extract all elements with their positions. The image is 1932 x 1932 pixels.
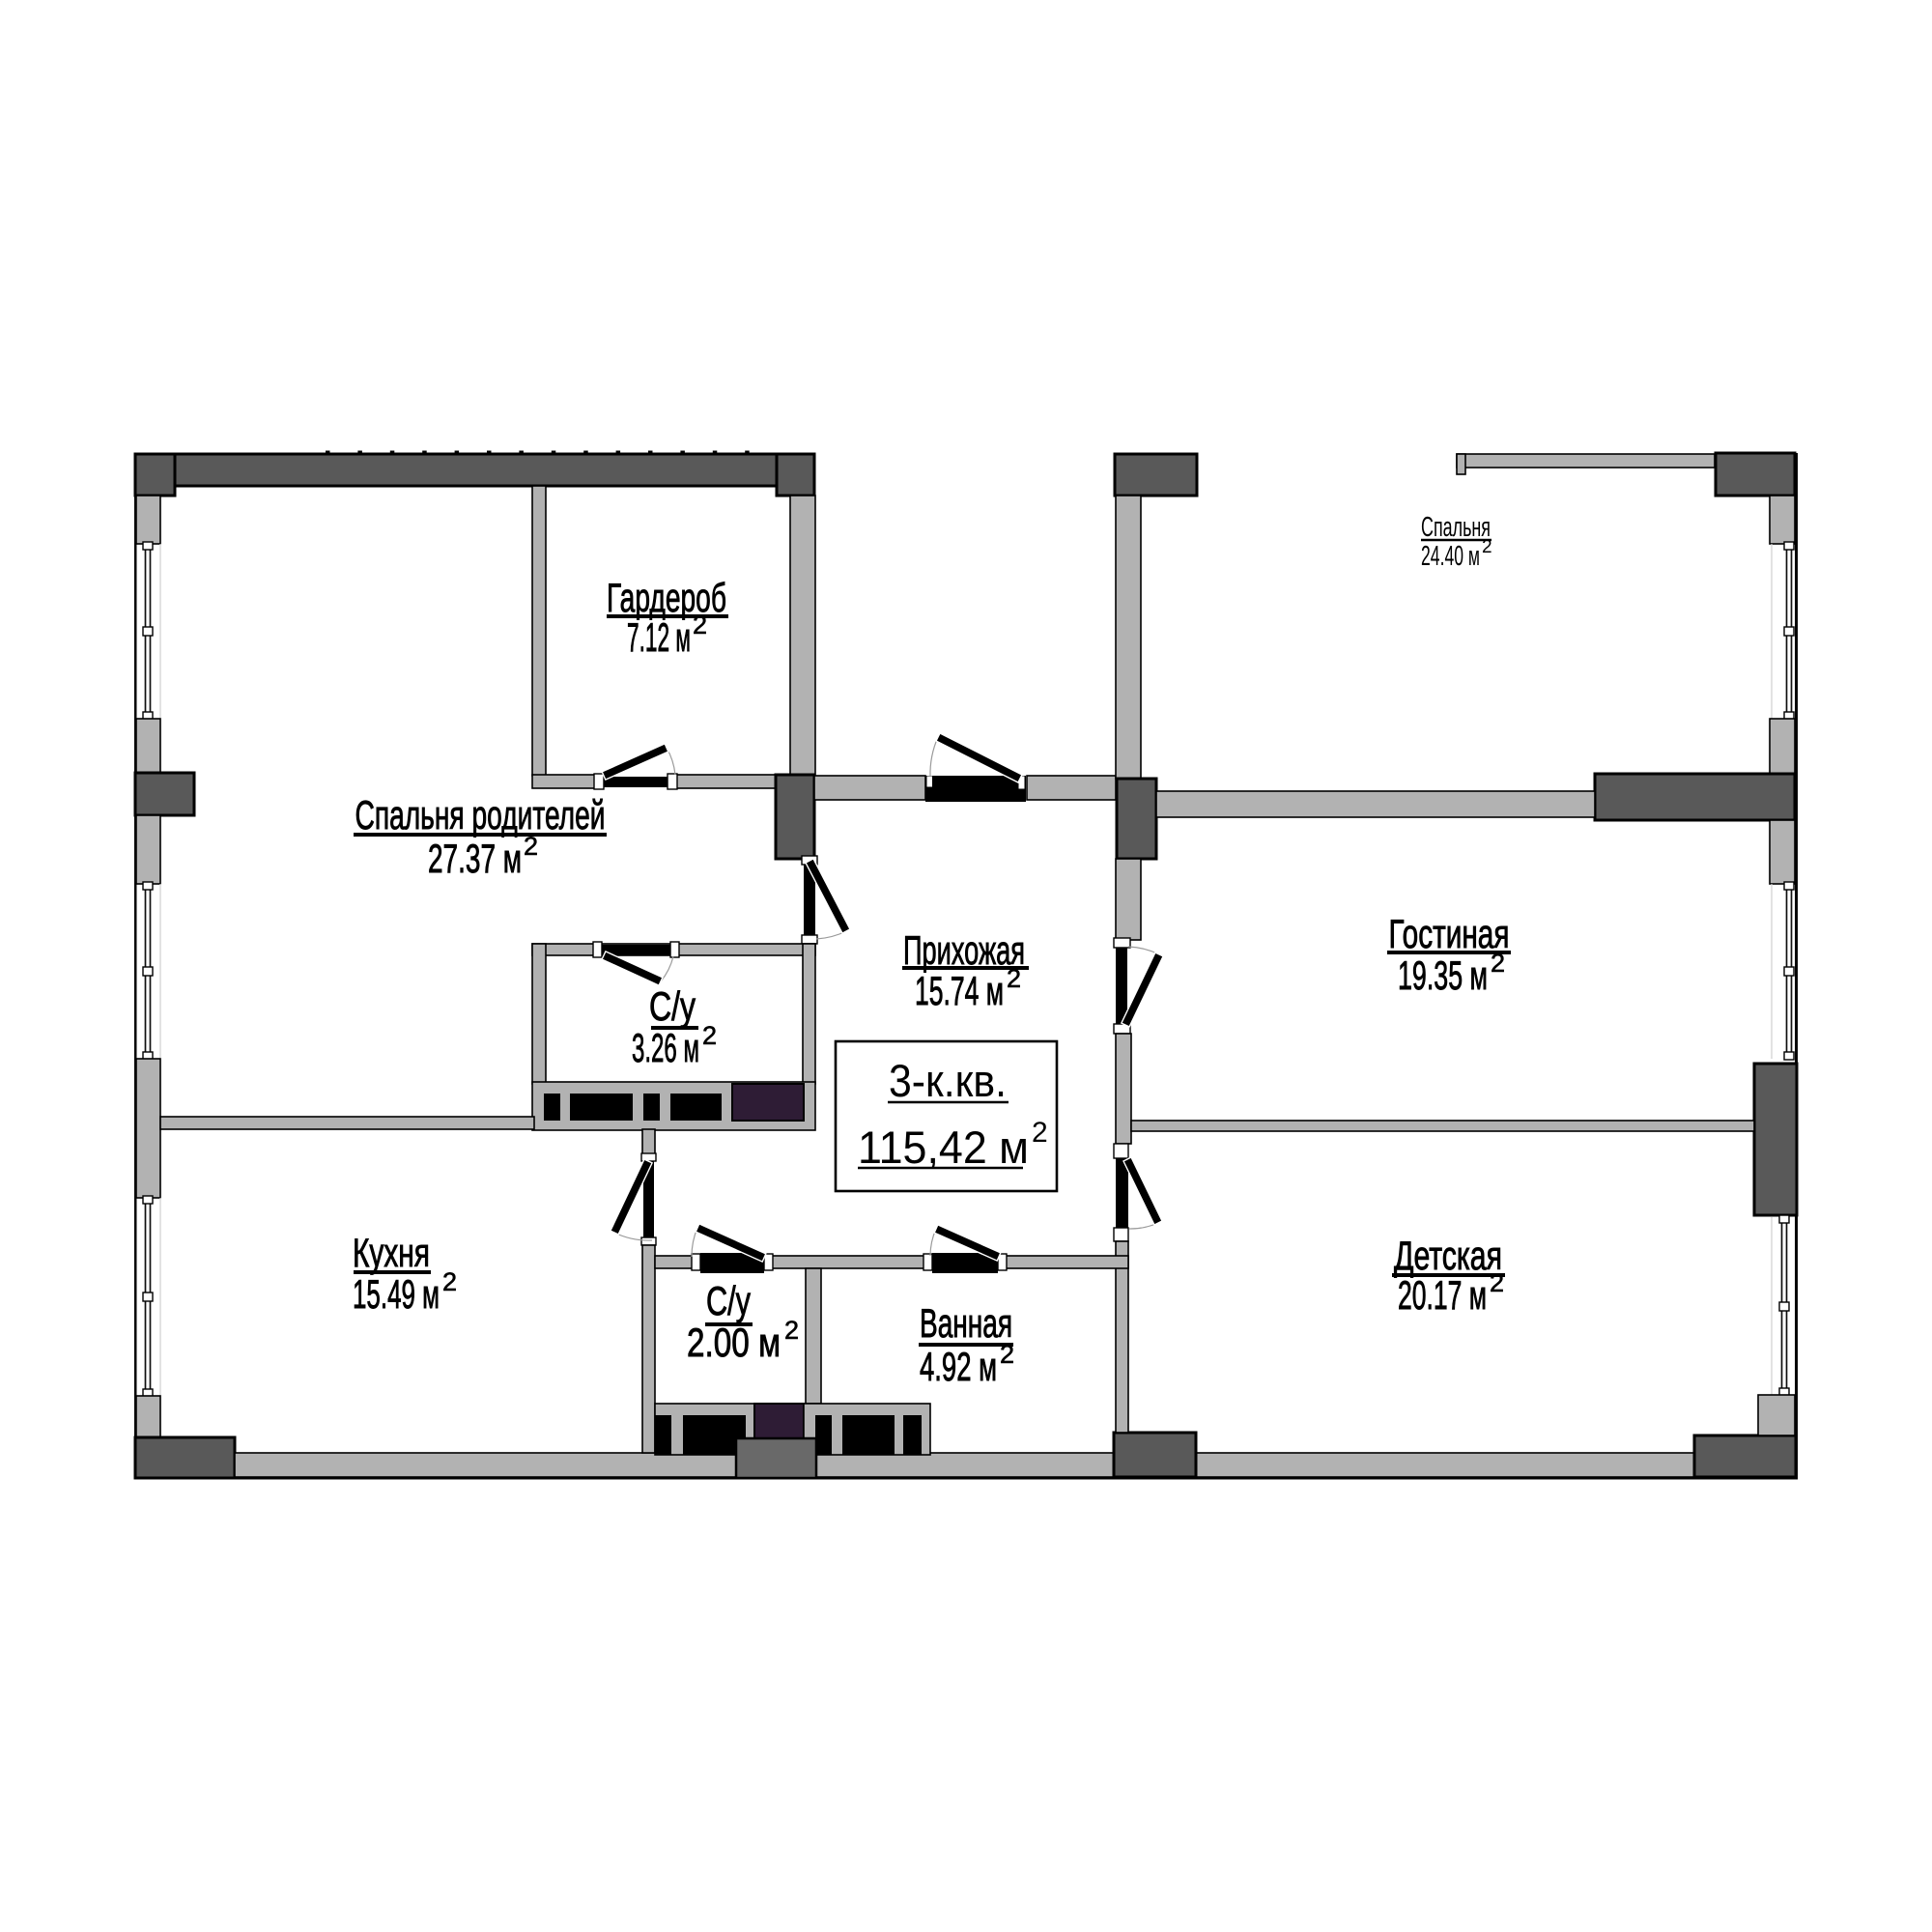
svg-text:20.17 м: 20.17 м (1398, 1272, 1487, 1318)
svg-text:24.40 м: 24.40 м (1421, 541, 1480, 572)
svg-text:2: 2 (1490, 1268, 1504, 1297)
svg-text:Детская: Детская (1394, 1233, 1502, 1278)
svg-text:Ванная: Ванная (920, 1300, 1012, 1346)
svg-text:2: 2 (524, 832, 538, 861)
svg-text:2: 2 (693, 611, 707, 639)
svg-text:2: 2 (442, 1267, 457, 1296)
svg-text:27.37 м: 27.37 м (428, 836, 522, 881)
svg-text:2: 2 (702, 1021, 717, 1050)
svg-text:3.26 м: 3.26 м (632, 1025, 699, 1070)
svg-text:115,42 м: 115,42 м (858, 1122, 1029, 1173)
svg-text:2: 2 (1000, 1340, 1014, 1369)
svg-text:2: 2 (1032, 1117, 1048, 1149)
svg-text:Спальня родителей: Спальня родителей (355, 792, 606, 838)
svg-text:Спальня: Спальня (1421, 512, 1491, 543)
svg-text:2: 2 (1482, 537, 1492, 557)
svg-text:15.49 м: 15.49 м (353, 1271, 440, 1317)
svg-text:3-к.кв.: 3-к.кв. (889, 1055, 1007, 1106)
svg-text:Гардероб: Гардероб (607, 575, 726, 620)
svg-text:19.35 м: 19.35 м (1398, 952, 1488, 998)
svg-text:Кухня: Кухня (353, 1230, 430, 1275)
svg-text:2: 2 (1491, 949, 1505, 978)
svg-text:С/у: С/у (706, 1278, 751, 1323)
svg-text:2: 2 (1007, 964, 1021, 993)
svg-text:2.00 м: 2.00 м (687, 1320, 781, 1365)
svg-text:2: 2 (784, 1316, 799, 1345)
svg-text:С/у: С/у (649, 983, 696, 1029)
svg-text:4.92 м: 4.92 м (920, 1344, 997, 1389)
svg-text:7.12 м: 7.12 м (627, 614, 691, 660)
svg-text:15.74 м: 15.74 м (915, 968, 1004, 1013)
